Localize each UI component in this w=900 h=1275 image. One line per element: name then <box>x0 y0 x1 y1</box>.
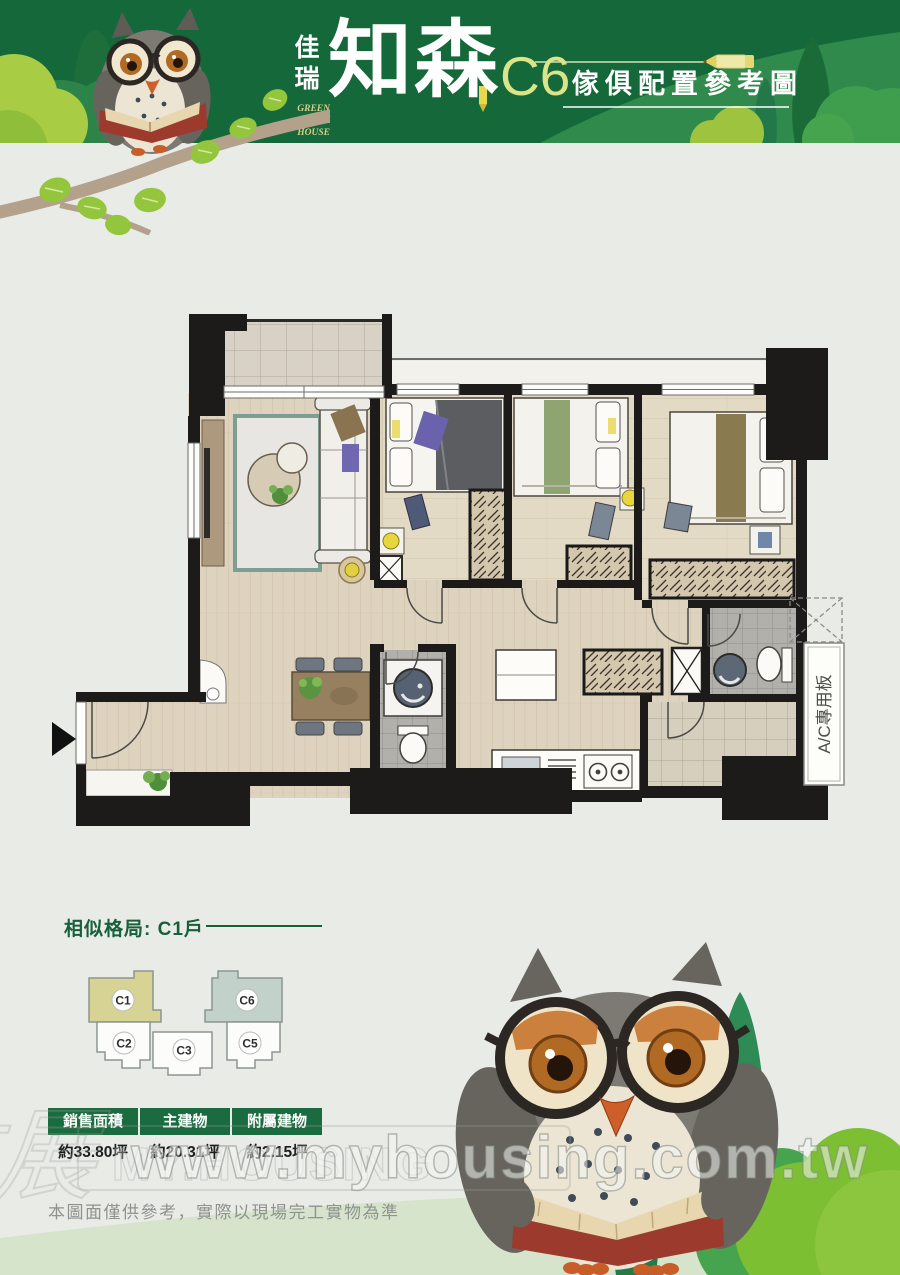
unit-c6-label: C6 <box>239 994 255 1008</box>
unit-c3-label: C3 <box>176 1044 192 1058</box>
unit-c2-label: C2 <box>116 1037 132 1051</box>
tv <box>204 448 210 538</box>
area-table: 銷售面積 主建物 附屬建物 約33.80坪 約20.31坪 約2.15坪 <box>48 1108 322 1165</box>
area-value: 約2.15坪 <box>232 1141 322 1165</box>
ac-label: A/C專用板 <box>815 674 834 753</box>
chair <box>664 502 692 532</box>
unit-code: C6 <box>500 44 570 108</box>
owl-large <box>442 942 791 1275</box>
area-value: 約33.80坪 <box>48 1141 138 1165</box>
unit-c1-label: C1 <box>115 994 131 1008</box>
stove <box>584 755 632 788</box>
linen-closet <box>584 650 662 694</box>
toilet <box>400 733 426 763</box>
floor-plan: A/C專用板 <box>52 298 852 863</box>
owl-small <box>89 8 215 156</box>
wardrobe <box>470 490 506 580</box>
bathroom1 <box>378 650 448 768</box>
area-value: 約20.31坪 <box>140 1141 230 1165</box>
wardrobe <box>567 546 631 584</box>
unit-key-diagram: C1 C6 C2 C3 C5 <box>60 952 320 1082</box>
owl-mascot-bottom <box>420 940 900 1275</box>
similar-layout-title: 相似格局: C1戶 <box>64 914 204 941</box>
brand-name: 知森 <box>328 16 500 104</box>
page-title: 傢俱配置參考圖 <box>572 62 803 101</box>
entry-arrow-icon <box>52 722 76 756</box>
toilet <box>757 647 781 681</box>
disclaimer-text: 本圖面僅供參考，實際以現場完工實物為準 <box>48 1198 400 1223</box>
unit-c5-label: C5 <box>242 1037 258 1051</box>
area-col-header: 附屬建物 <box>232 1108 322 1135</box>
stool <box>207 688 219 700</box>
area-col-header: 銷售面積 <box>48 1108 138 1135</box>
title-underline <box>563 106 789 108</box>
area-col-header: 主建物 <box>140 1108 230 1135</box>
owl-mascot-top <box>0 0 330 235</box>
lamp-icon <box>345 563 359 577</box>
lamp-icon <box>383 533 399 549</box>
sofa <box>315 397 371 563</box>
poster-page: 佳瑞 GREEN PARK HOUSE 知森 C6 傢俱配置參考圖 <box>0 0 900 1275</box>
similar-layout-line <box>206 925 322 927</box>
wardrobe <box>650 560 794 598</box>
bathroom2 <box>706 608 796 696</box>
